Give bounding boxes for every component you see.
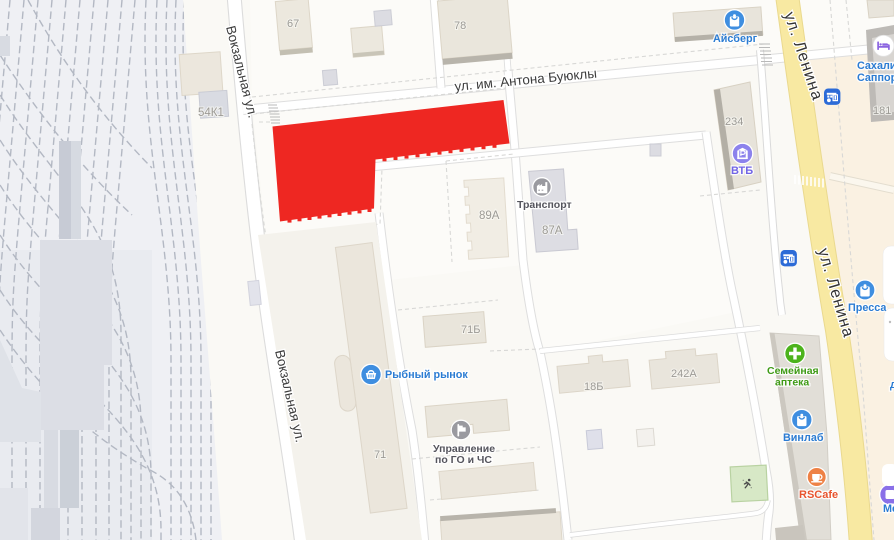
svg-text:67: 67 — [287, 18, 299, 30]
svg-text:89А: 89А — [479, 210, 500, 222]
svg-text:Саппоро: Саппоро — [857, 72, 894, 84]
svg-text:181: 181 — [873, 105, 891, 117]
svg-text:аптека: аптека — [775, 377, 809, 389]
svg-text:д: д — [890, 379, 894, 391]
svg-text:Рыбный рынок: Рыбный рынок — [385, 369, 468, 381]
svg-text:Айсберг: Айсберг — [713, 33, 758, 45]
svg-text:71: 71 — [374, 449, 386, 461]
svg-text:по ГО и ЧС: по ГО и ЧС — [435, 454, 492, 466]
svg-text:242А: 242А — [671, 368, 697, 380]
svg-text:RSCafe: RSCafe — [799, 489, 838, 501]
svg-text:78: 78 — [454, 20, 466, 32]
svg-text:18Б: 18Б — [584, 381, 603, 393]
svg-text:54К1: 54К1 — [198, 107, 224, 119]
svg-text:Ме: Ме — [883, 503, 894, 515]
svg-text:Сахалин: Сахалин — [857, 60, 894, 72]
svg-text:Семейная: Семейная — [767, 365, 819, 377]
svg-text:Транспорт: Транспорт — [517, 199, 572, 211]
svg-text:71Б: 71Б — [461, 324, 480, 336]
svg-text:Пресса: Пресса — [848, 302, 887, 314]
svg-text:ВТБ: ВТБ — [731, 165, 753, 177]
svg-text:234: 234 — [725, 116, 743, 128]
svg-text:Винлаб: Винлаб — [783, 432, 824, 444]
svg-text:87А: 87А — [542, 225, 563, 237]
